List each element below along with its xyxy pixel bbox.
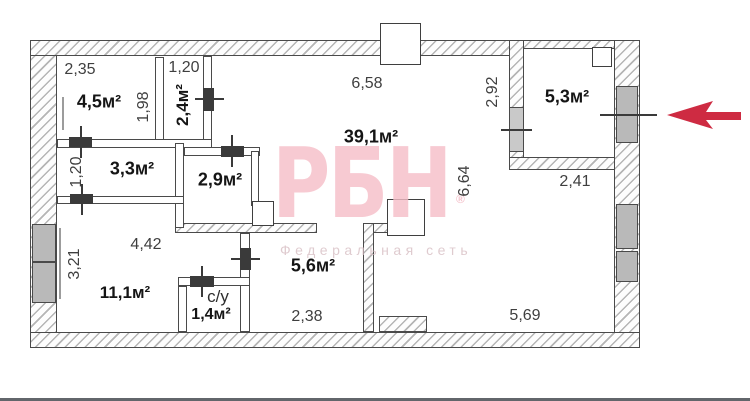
outer-wall-top [30,40,511,56]
room-label-3-3: 3,3м² [110,159,154,180]
door-tick-wc [201,266,203,297]
dim-2-38: 2,38 [291,308,322,326]
window-right-pane-1 [616,204,638,249]
vent-box-top [380,23,421,65]
entrance-arrow-shape [667,101,741,129]
door-tick-29 [231,135,233,167]
window-left-pane-2 [32,262,56,303]
partition-29-right [251,151,259,206]
window-cross-line [600,114,657,116]
watermark-logo: РБН [272,146,450,222]
partition-wc-left [178,286,187,332]
partition-45-24 [155,57,164,143]
partition-wc-top [178,277,250,286]
shaft-box [252,201,274,226]
room-label-5-6: 5,6м² [291,256,335,277]
room-label-4-5: 4,5м² [77,92,121,113]
loggia-niche-box [592,47,612,67]
room-label-11-1: 11,1м² [100,283,150,303]
dim-2-35: 2,35 [64,61,95,79]
bottom-wall-step [379,316,427,332]
dim-6-64: 6,64 [456,165,474,196]
door-tick-33 [81,184,83,215]
dim-1-20-top: 1,20 [168,59,199,77]
room-label-1-4: 1,4м² [191,306,230,324]
outer-wall-bottom [30,332,640,348]
loggia-bottom-wall [509,157,615,170]
partition-33-right [175,143,184,228]
room-label-39-1: 39,1м² [344,127,398,148]
entrance-arrow-icon [660,96,744,134]
dim-2-92: 2,92 [484,76,502,107]
balcony-door-tick [501,129,532,131]
window-sill-line [59,228,61,299]
window-left-pane-1 [32,224,56,262]
dim-2-41: 2,41 [559,173,590,191]
dim-1-20-left: 1,20 [68,156,86,187]
room-label-bath: с/у [207,287,229,307]
dim-1-98: 1,98 [135,91,153,122]
room-label-2-9: 2,9м² [198,170,242,191]
wardrobe-line [62,97,64,130]
dim-3-21: 3,21 [66,248,84,279]
window-right-pane-2 [616,251,638,282]
dim-6-58: 6,58 [351,75,382,93]
door-tick-56 [231,258,260,260]
room-label-5-3: 5,3м² [545,87,589,108]
dim-4-42: 4,42 [130,236,161,254]
dim-5-69: 5,69 [509,307,540,325]
door-tick-24 [195,98,224,100]
floor-plan: РБН ® Федеральная сеть 2,35 1,20 1,98 6,… [0,0,750,401]
door-tick-45 [80,126,82,158]
room-label-2-4: 2,4м² [173,84,193,126]
